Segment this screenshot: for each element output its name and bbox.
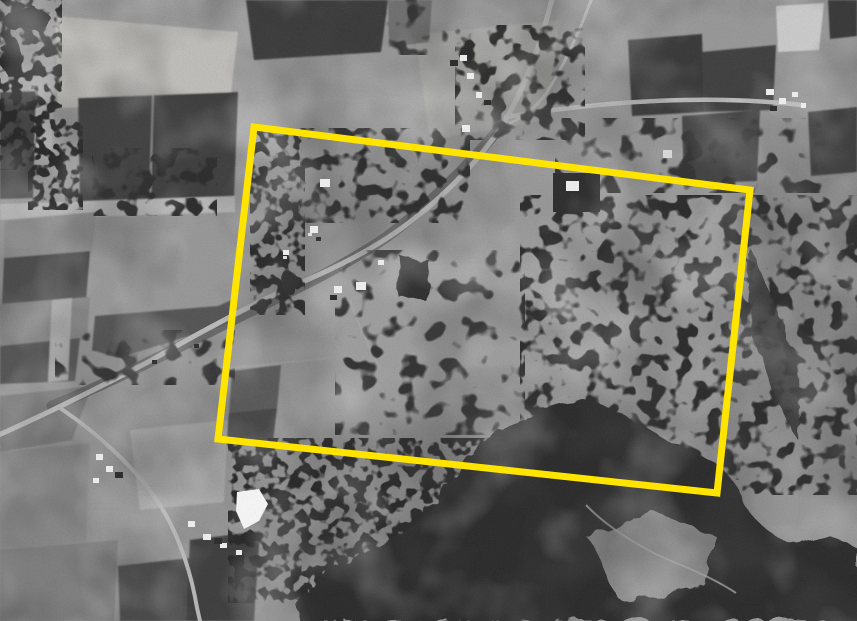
- screenshot-root: [0, 0, 857, 621]
- grain-light: [0, 0, 857, 621]
- aerial-photograph: [0, 0, 857, 621]
